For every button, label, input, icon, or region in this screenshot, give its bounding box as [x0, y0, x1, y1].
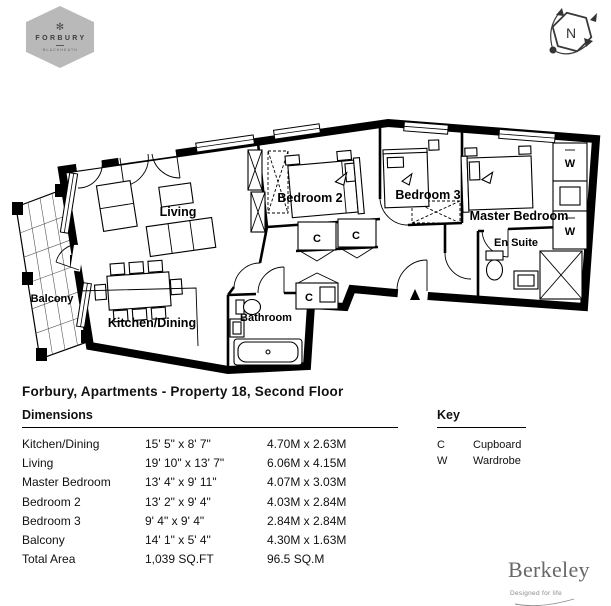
room-name-cell: Kitchen/Dining	[22, 435, 145, 454]
key-section: Key C Cupboard W Wardrobe	[437, 408, 526, 469]
berkeley-logo-name: Berkeley	[508, 558, 603, 582]
metric-cell: 96.5 SQ.M	[267, 550, 398, 569]
berkeley-swash	[514, 598, 576, 606]
key-label: Cupboard	[473, 438, 526, 454]
table-row: Kitchen/Dining 15' 5" x 8' 7" 4.70M x 2.…	[22, 435, 398, 454]
table-row: Living 19' 10" x 13' 7" 6.06M x 4.15M	[22, 454, 398, 473]
page-title: Forbury, Apartments - Property 18, Secon…	[22, 384, 343, 399]
room-name-cell: Living	[22, 454, 145, 473]
cupboard-symbol: C	[305, 292, 313, 304]
room-name-cell: Master Bedroom	[22, 473, 145, 492]
table-row: Master Bedroom 13' 4" x 9' 11" 4.07M x 3…	[22, 473, 398, 492]
imperial-cell: 9' 4" x 9' 4"	[145, 512, 267, 531]
imperial-cell: 13' 4" x 9' 11"	[145, 473, 267, 492]
imperial-cell: 19' 10" x 13' 7"	[145, 454, 267, 473]
key-heading: Key	[437, 408, 526, 428]
imperial-cell: 13' 2" x 9' 4"	[145, 493, 267, 512]
berkeley-logo: Berkeley Designed for life	[508, 558, 603, 606]
room-label-bedroom2: Bedroom 2	[277, 191, 342, 205]
dimensions-heading: Dimensions	[22, 408, 398, 428]
key-row: W Wardrobe	[437, 454, 526, 470]
metric-cell: 4.70M x 2.63M	[267, 435, 398, 454]
metric-cell: 6.06M x 4.15M	[267, 454, 398, 473]
room-name-cell: Bedroom 2	[22, 493, 145, 512]
room-label-en-suite: En Suite	[494, 237, 538, 249]
wardrobe-symbol: W	[565, 158, 576, 170]
imperial-cell: 1,039 SQ.FT	[145, 550, 267, 569]
key-row: C Cupboard	[437, 438, 526, 454]
north-label: N	[566, 25, 576, 41]
imperial-cell: 14' 1" x 5' 4"	[145, 531, 267, 550]
table-row: Bedroom 3 9' 4" x 9' 4" 2.84M x 2.84M	[22, 512, 398, 531]
room-name-cell: Total Area	[22, 550, 145, 569]
floorplan-page: { "logo": { "name": "FORBURY", "tagline"…	[0, 0, 611, 606]
table-row: Balcony 14' 1" x 5' 4" 4.30M x 1.63M	[22, 531, 398, 550]
room-label-bathroom: Bathroom	[240, 312, 292, 324]
metric-cell: 4.07M x 3.03M	[267, 473, 398, 492]
key-label: Wardrobe	[473, 454, 526, 470]
table-row: Bedroom 2 13' 2" x 9' 4" 4.03M x 2.84M	[22, 493, 398, 512]
room-label-bedroom3: Bedroom 3	[395, 188, 460, 202]
cupboard-symbol: C	[313, 233, 321, 245]
berkeley-tagline: Designed for life	[510, 590, 562, 597]
imperial-cell: 15' 5" x 8' 7"	[145, 435, 267, 454]
north-compass-icon: N	[550, 8, 598, 54]
room-name-cell: Bedroom 3	[22, 512, 145, 531]
metric-cell: 4.30M x 1.63M	[267, 531, 398, 550]
room-label-living: Living	[160, 205, 197, 219]
metric-cell: 4.03M x 2.84M	[267, 493, 398, 512]
dimensions-section: Dimensions Kitchen/Dining 15' 5" x 8' 7"…	[22, 408, 398, 569]
table-row: Total Area 1,039 SQ.FT 96.5 SQ.M	[22, 550, 398, 569]
floor-plan: N	[0, 0, 611, 380]
room-label-balcony: Balcony	[31, 293, 75, 305]
room-label-master-bedroom: Master Bedroom	[470, 209, 569, 223]
room-name-cell: Balcony	[22, 531, 145, 550]
key-symbol: W	[437, 454, 473, 470]
key-symbol: C	[437, 438, 473, 454]
cupboard-symbol: C	[352, 230, 360, 242]
metric-cell: 2.84M x 2.84M	[267, 512, 398, 531]
wardrobe-symbol: W	[565, 226, 576, 238]
room-label-kitchen-dining: Kitchen/Dining	[108, 316, 196, 330]
